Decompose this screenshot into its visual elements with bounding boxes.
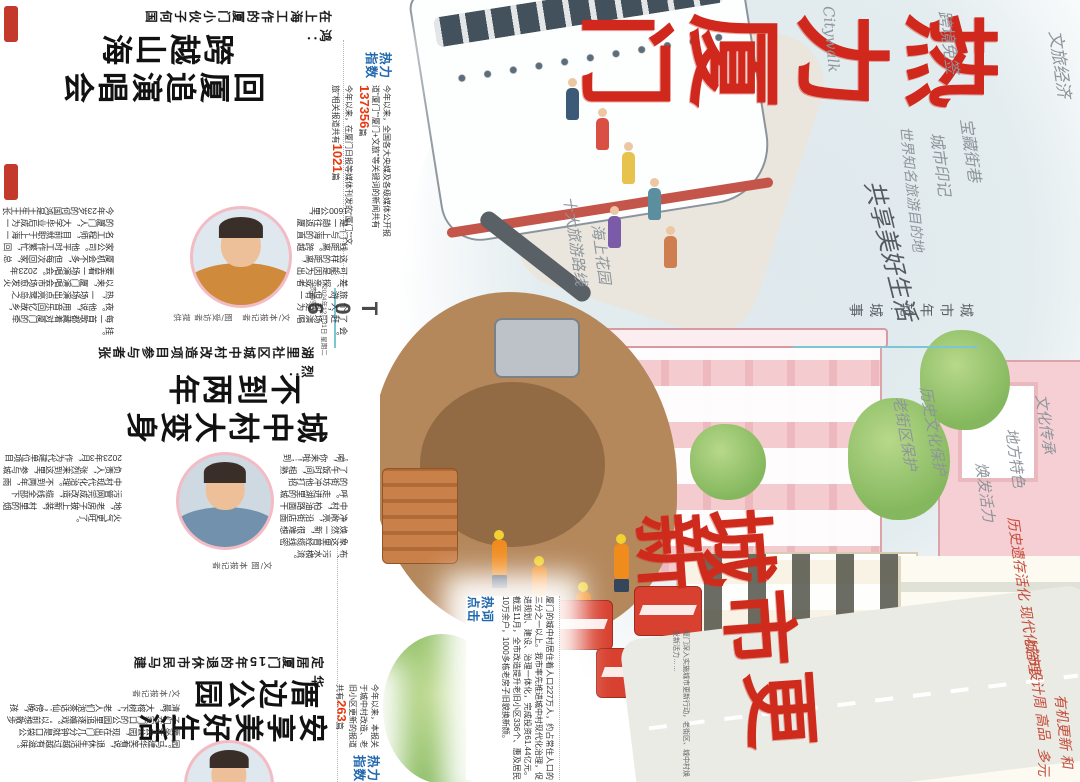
article-headline: 回厦追演唱会 (35, 62, 265, 107)
tag-old-street-protection: 老街区保护 (889, 395, 923, 473)
stat-line: 今年以来，本报关于城中村改造、老旧小区更新的报道共有263篇 (334, 684, 380, 750)
article-byline: 文/本报记者 图/受访者 提供 (118, 312, 290, 323)
hot-word-label: 热词点击 (466, 596, 494, 623)
dotted-divider (559, 596, 560, 780)
article-body: 2023年3月，作为代建单位项目负责人，张烈来到这里，参与城中村现代化治理。不到… (2, 452, 122, 638)
tag-renewed-vitality: 焕发活力 (971, 461, 1000, 523)
section-rule (793, 346, 978, 348)
tag-garden-on-the-sea: 海上花园 (587, 223, 616, 285)
heat-index-panel-renewal: 今年以来，本报关于城中村改造、老旧小区更新的报道共有263篇 热力指数 (334, 684, 380, 782)
tag-culture-tourism-economy: 文旅经济 (1044, 29, 1078, 100)
secondary-calligraphy-title: 城 市 更 新 (618, 501, 862, 782)
newspaper-page: 热力厦门 城 市 更 新 文旅经济 跨境免签 宝藏街巷 城市印记 世界知名旅游目… (0, 0, 1080, 782)
article-body: 今年23岁的何国鸿是土生土长的厦门人，大学毕业后成为一名工程师，目前就职于上海一… (2, 205, 114, 337)
portrait-photo (184, 740, 274, 782)
red-seal-mark (4, 164, 18, 200)
portrait-photo (176, 452, 274, 550)
stat-line: 今年以来，全国各大央媒及各级媒体公开报道“厦门”“厦门+文旅”等关键词的新闻共有… (357, 85, 392, 252)
tag-city-design-week: 城市设计周 高品 (1021, 637, 1055, 741)
article-body: “嗬，你来啦！”到了午饭时间，相熟的街坊冲他打招呼。走进湖里的城中村，柏油路面干… (278, 452, 348, 638)
article-headline: 城中村大变身 (98, 402, 328, 447)
article-byline: 文/本报记者 (50, 688, 180, 699)
portrait-photo (190, 206, 292, 308)
heat-index-label: 热力指数 (330, 52, 392, 79)
article-body: 1600公里，是一趟往返厦门与上海的直线距离。跨越这样的距离，可能是因为出差、探… (296, 205, 348, 337)
hot-word-panel: 厦门的城中村居住着人口227万人，约占常住人口的三分之一以上。我市率先推进城中村… (466, 596, 560, 780)
title-char: 更 (727, 666, 844, 752)
article-byline: 文/图 本报记者 (132, 560, 272, 571)
article-body: 清晨，大榕树下，老人们泡茶话仙；傍晚，孩子们在家门口的公园里追逐嬉戏。“以前想散… (2, 702, 180, 782)
tag-treasure-streets: 宝藏街巷 (956, 117, 989, 184)
tag-top-ten-routes: 十大旅游路线 (559, 195, 592, 287)
title-char: 新 (618, 508, 735, 594)
rotated-page-layer: 热力厦门 城 市 更 新 文旅经济 跨境免签 宝藏街巷 城市印记 世界知名旅游目… (0, 0, 1080, 782)
hot-word-paragraph: 厦门的城中村居住着人口227万人，约占常住人口的三分之一以上。我市率先推进城中村… (500, 596, 555, 780)
section-label: 城市年轮·城事 (789, 300, 974, 320)
main-calligraphy-title: 热力厦门 (540, 4, 1000, 100)
renewal-intro: 厦门深入实施城市更新行动，老街区、城中村焕发新活力…… (670, 630, 690, 780)
tag-diverse: 多元 (1034, 748, 1054, 776)
tag-city-imprint: 城市印记 (926, 131, 959, 198)
heat-index-label: 热力指数 (334, 755, 380, 782)
title-char: 市 (705, 585, 822, 671)
tag-organic-renewal: 有机更新 和 (1050, 693, 1078, 769)
tag-culture-heritage: 文化传承 (1031, 393, 1060, 455)
red-seal-mark (4, 6, 18, 42)
tag-local-character: 地方特色 (1001, 427, 1030, 489)
